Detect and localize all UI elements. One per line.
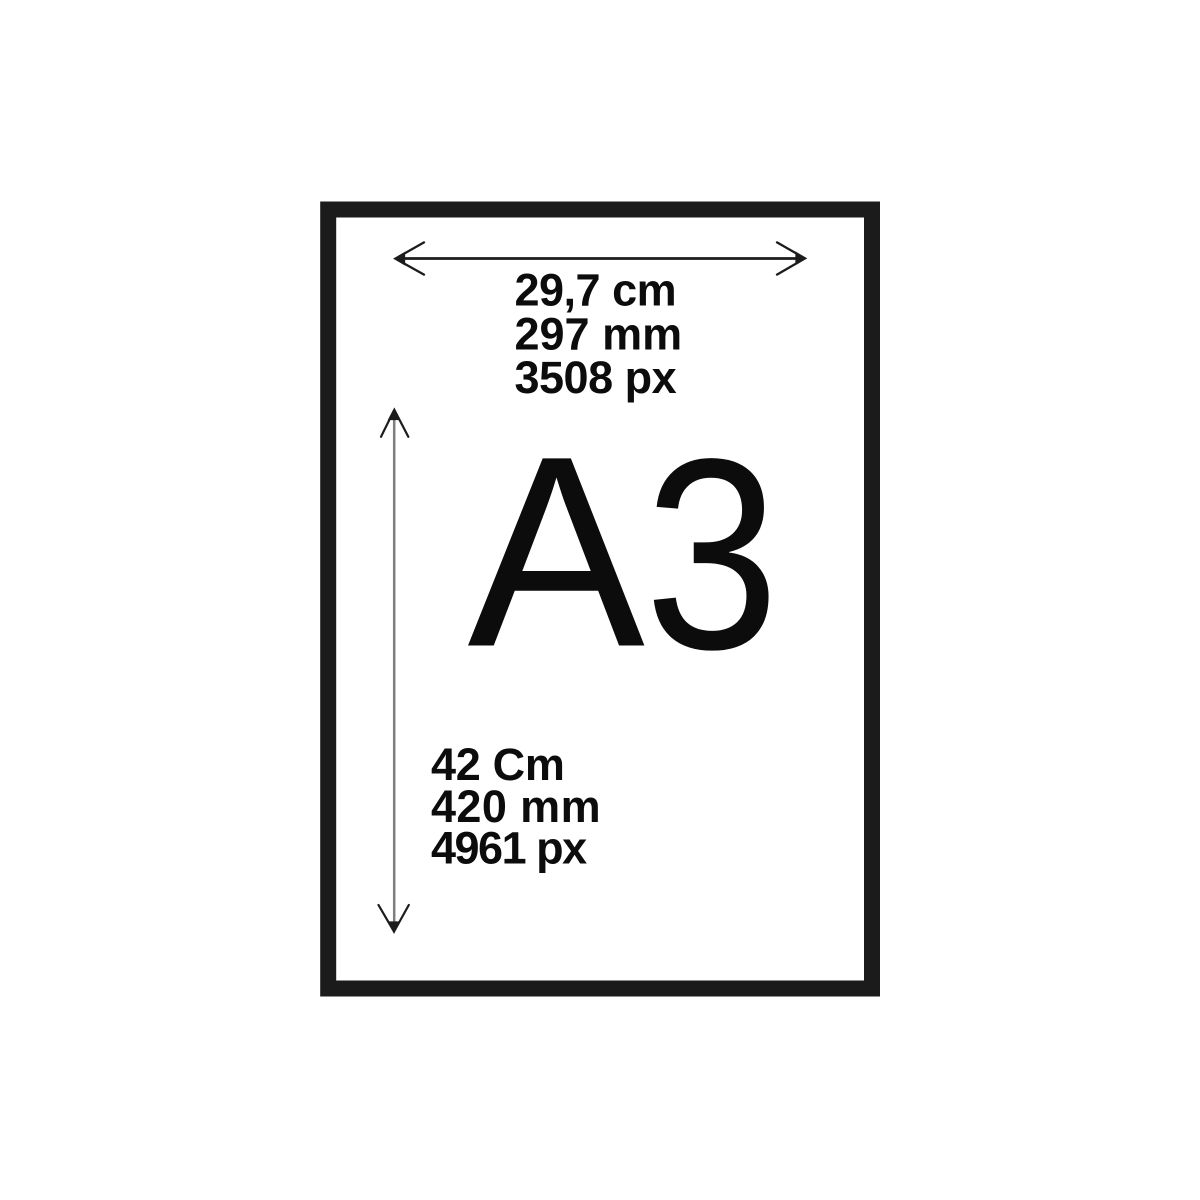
svg-text:3: 3 (645, 402, 780, 706)
svg-text:A: A (468, 400, 647, 704)
svg-text:3508 px: 3508 px (515, 352, 677, 403)
svg-text:4961 px: 4961 px (431, 823, 587, 874)
